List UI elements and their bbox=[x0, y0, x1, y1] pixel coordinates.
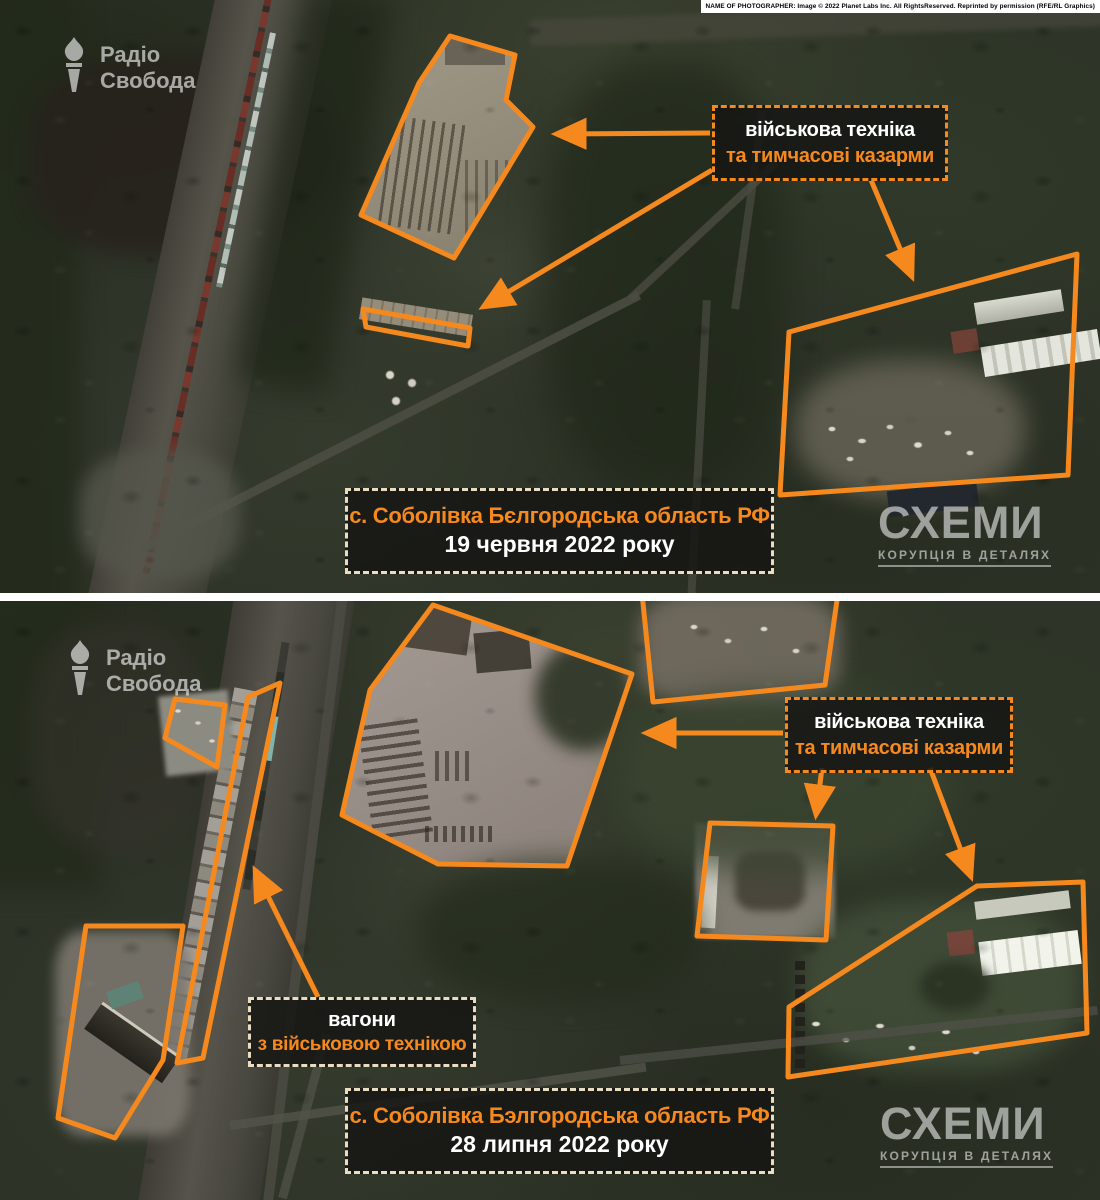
satellite-panel-july: Радіо Свобода військова техніка та тимча… bbox=[0, 601, 1100, 1200]
outline-north-lot bbox=[642, 601, 838, 702]
brand-line2: Свобода bbox=[106, 671, 202, 696]
caption-location: с. Соболівка Бэлгородська область РФ bbox=[348, 1102, 771, 1131]
schemes-watermark: СХЕМИ КОРУПЦІЯ В ДЕТАЛЯХ bbox=[880, 1103, 1053, 1168]
credit-bar: NAME OF PHOTOGRAPHER: Image © 2022 Plane… bbox=[701, 0, 1100, 13]
outline-small-lot bbox=[165, 699, 225, 767]
outline-dirt-strip bbox=[363, 309, 470, 346]
label-line2: та тимчасові казарми bbox=[715, 143, 945, 169]
caption-date: 19 червня 2022 року bbox=[348, 530, 771, 560]
satellite-infographic: Радіо Свобода військова техніка та тимча… bbox=[0, 0, 1100, 1200]
label-military-equipment: військова техніка та тимчасові казарми bbox=[712, 105, 948, 181]
brand-radio-svoboda: Радіо Свобода bbox=[57, 36, 196, 99]
arrow-to-barracks-yard bbox=[871, 180, 912, 277]
brand-radio-svoboda: Радіо Свобода bbox=[63, 639, 202, 702]
caption-location-date: с. Соболівка Бєлгородська область РФ 19 … bbox=[345, 488, 774, 574]
panel-divider bbox=[0, 593, 1100, 601]
rfe-rl-torch-icon bbox=[57, 36, 91, 99]
label-line1: військова техніка bbox=[788, 709, 1010, 735]
brand-line1: Радіо bbox=[100, 42, 160, 67]
arrow-to-rail-wagons bbox=[255, 870, 318, 997]
label-wagons: вагони з військовою технікою bbox=[248, 997, 476, 1067]
outline-training-ground bbox=[361, 36, 533, 258]
label-military-equipment: військова техніка та тимчасові казарми bbox=[785, 697, 1013, 773]
schemes-subtitle: КОРУПЦІЯ В ДЕТАЛЯХ bbox=[880, 1149, 1053, 1168]
arrow-to-dirt-strip bbox=[483, 170, 712, 307]
brand-line2: Свобода bbox=[100, 68, 196, 93]
wagons-line1: вагони bbox=[251, 1007, 473, 1033]
label-line2: та тимчасові казарми bbox=[788, 735, 1010, 761]
caption-date: 28 липня 2022 року bbox=[348, 1130, 771, 1160]
caption-location: с. Соболівка Бєлгородська область РФ bbox=[348, 502, 771, 531]
arrow-to-training-ground bbox=[556, 133, 710, 134]
satellite-panel-june: Радіо Свобода військова техніка та тимча… bbox=[0, 0, 1100, 593]
outline-square-lot bbox=[697, 823, 833, 940]
label-line1: військова техніка bbox=[715, 117, 945, 143]
schemes-watermark: СХЕМИ КОРУПЦІЯ В ДЕТАЛЯХ bbox=[878, 502, 1051, 567]
outline-southwest-lot bbox=[58, 926, 183, 1138]
outline-barracks-yard bbox=[788, 882, 1087, 1077]
wagons-line2: з військовою технікою bbox=[251, 1033, 473, 1058]
rfe-rl-torch-icon bbox=[63, 639, 97, 702]
brand-line1: Радіо bbox=[106, 645, 166, 670]
caption-location-date: с. Соболівка Бэлгородська область РФ 28 … bbox=[345, 1088, 774, 1174]
schemes-subtitle: КОРУПЦІЯ В ДЕТАЛЯХ bbox=[878, 548, 1051, 567]
arrow-to-square-lot bbox=[816, 768, 822, 815]
outline-training-ground bbox=[342, 605, 632, 866]
schemes-title: СХЕМИ bbox=[878, 502, 1051, 545]
outline-barracks-yard bbox=[780, 254, 1077, 495]
arrow-to-barracks-yard bbox=[930, 768, 971, 877]
schemes-title: СХЕМИ bbox=[880, 1103, 1053, 1146]
